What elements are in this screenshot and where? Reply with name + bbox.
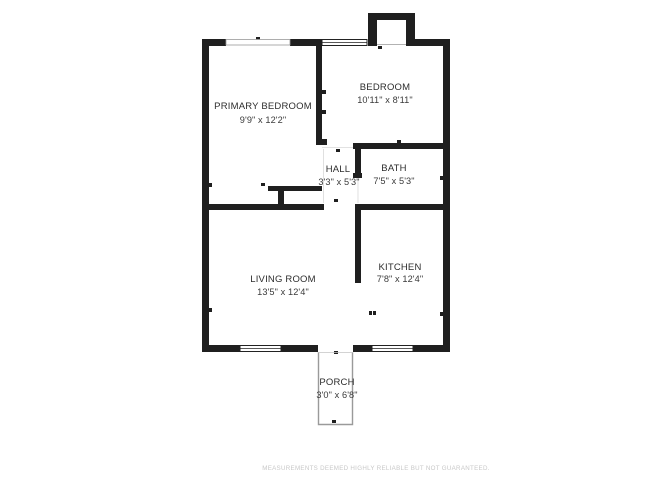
bedroom-label: BEDROOM [360, 82, 411, 93]
hall-dims: 3'3" x 5'3" [318, 177, 359, 187]
door-openings [322, 148, 358, 204]
bath-label: BATH [381, 163, 406, 174]
bedroom-dims: 10'11" x 8'11" [357, 95, 413, 105]
porch-label: PORCH [319, 377, 354, 388]
exterior-walls [202, 39, 450, 352]
kitchen-dims: 7'8" x 12'4" [377, 274, 423, 284]
window-bottom-right [372, 346, 413, 352]
primary-bedroom-label: PRIMARY BEDROOM [214, 101, 312, 112]
window-top-left [226, 40, 290, 46]
interior-walls [202, 39, 450, 283]
living-room-dims: 13'5" x 12'4" [257, 287, 309, 297]
living-room-label: LIVING ROOM [250, 274, 316, 285]
porch-dims: 3'0" x 6'8" [316, 390, 357, 400]
primary-bedroom-dims: 9'9" x 12'2" [240, 115, 286, 125]
walls [202, 13, 450, 423]
window-bottom-left [240, 346, 281, 352]
kitchen-label: KITCHEN [378, 262, 421, 273]
hall-label: HALL [326, 164, 351, 175]
floorplan-page: PRIMARY BEDROOM 9'9" x 12'2" BEDROOM 10'… [0, 0, 650, 488]
floorplan-canvas: PRIMARY BEDROOM 9'9" x 12'2" BEDROOM 10'… [0, 0, 650, 488]
disclaimer-text: MEASUREMENTS DEEMED HIGHLY RELIABLE BUT … [262, 465, 490, 472]
porch-outline [318, 352, 353, 425]
bumpout-walls [368, 13, 415, 46]
bath-dims: 7'5" x 5'3" [373, 176, 414, 186]
window-top-right [322, 40, 367, 46]
